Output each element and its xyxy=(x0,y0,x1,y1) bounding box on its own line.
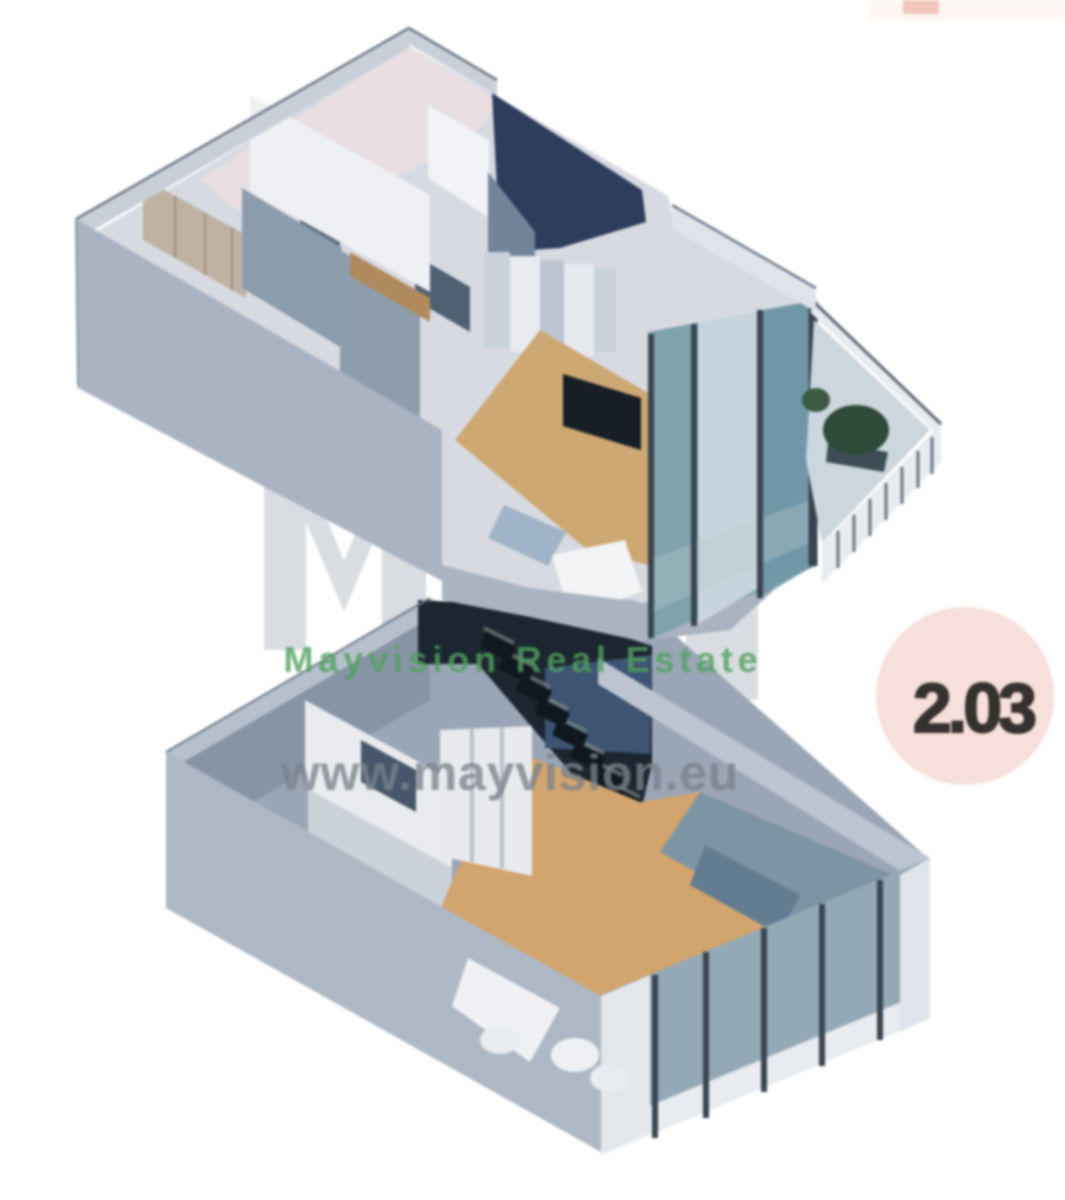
svg-text:2.03: 2.03 xyxy=(913,669,1035,747)
svg-text:www.mayvision.eu: www.mayvision.eu xyxy=(280,745,739,801)
svg-text:Mayvision Real Estate: Mayvision Real Estate xyxy=(284,639,763,680)
